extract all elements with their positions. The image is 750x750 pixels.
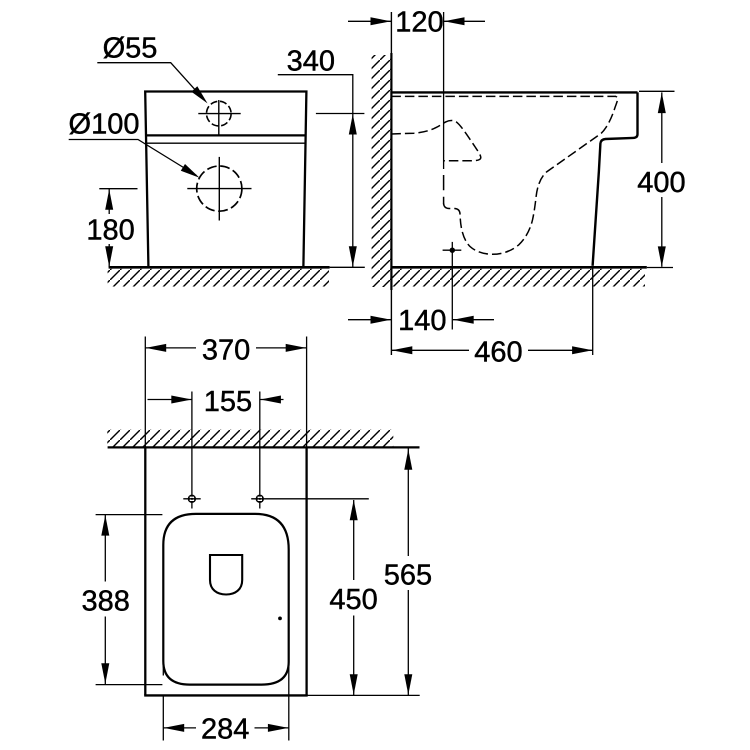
svg-text:120: 120 [395,7,443,39]
svg-text:370: 370 [202,335,250,367]
svg-text:400: 400 [637,167,685,199]
svg-text:450: 450 [329,584,377,616]
svg-text:180: 180 [86,214,134,246]
svg-text:140: 140 [398,305,446,337]
svg-text:155: 155 [204,386,252,418]
svg-text:Ø100: Ø100 [69,109,140,141]
svg-text:340: 340 [287,46,335,78]
svg-text:284: 284 [201,714,249,746]
svg-text:460: 460 [474,337,522,369]
svg-text:388: 388 [82,585,130,617]
svg-text:Ø55: Ø55 [103,32,158,64]
svg-text:565: 565 [384,559,432,591]
